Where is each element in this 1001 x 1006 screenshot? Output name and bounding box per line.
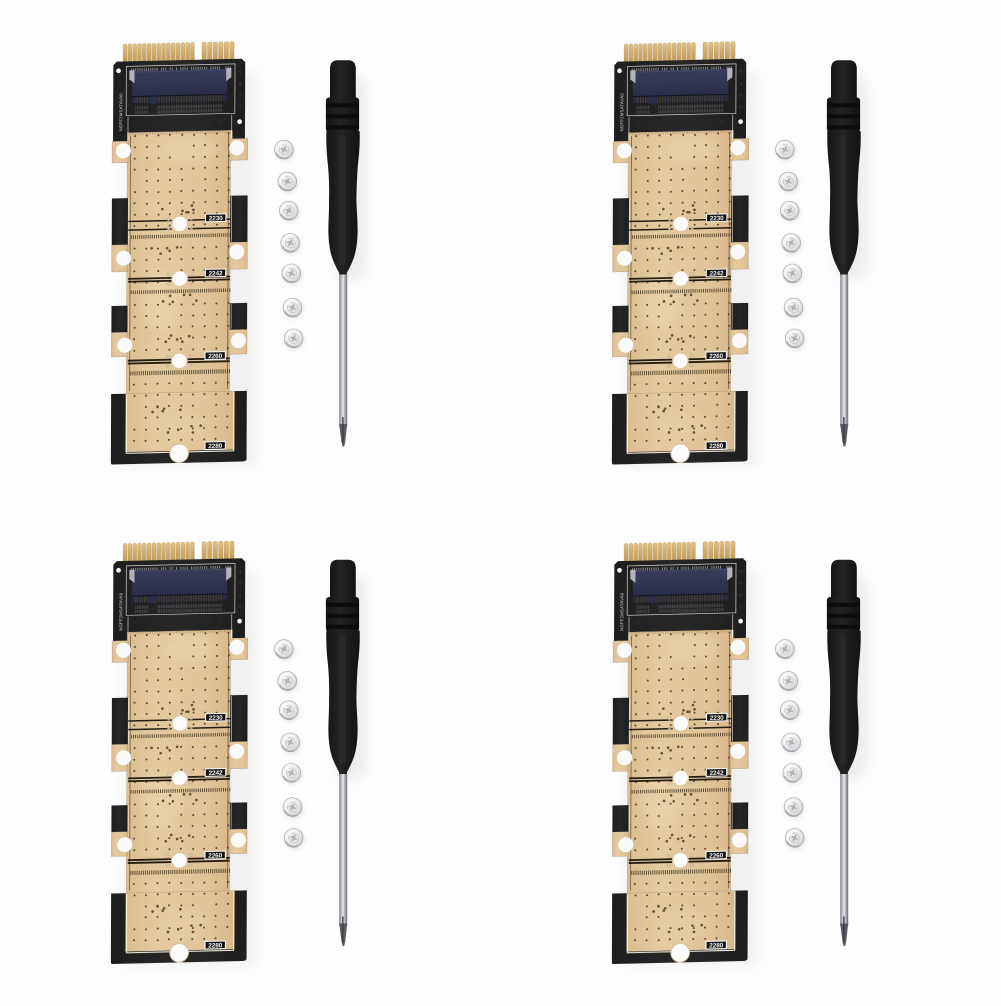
svg-text:2242: 2242 xyxy=(710,770,724,777)
svg-text:NGFF2MSATAVA0: NGFF2MSATAVA0 xyxy=(118,592,123,631)
svg-text:NGFF2MSATAVA0: NGFF2MSATAVA0 xyxy=(619,93,624,132)
svg-text:2260: 2260 xyxy=(208,852,222,859)
svg-text:2260: 2260 xyxy=(709,852,723,859)
svg-text:2230: 2230 xyxy=(710,715,724,722)
svg-text:2280: 2280 xyxy=(709,942,723,949)
svg-text:2242: 2242 xyxy=(209,770,223,777)
svg-text:2280: 2280 xyxy=(208,942,222,949)
svg-text:2280: 2280 xyxy=(709,443,723,450)
svg-text:2280: 2280 xyxy=(208,443,222,450)
svg-text:2260: 2260 xyxy=(208,353,222,360)
svg-text:2230: 2230 xyxy=(209,715,223,722)
svg-text:2230: 2230 xyxy=(710,215,724,222)
svg-text:2242: 2242 xyxy=(209,270,223,277)
svg-text:2260: 2260 xyxy=(709,353,723,360)
svg-text:NGFF2MSATAVA0: NGFF2MSATAVA0 xyxy=(118,93,123,132)
svg-text:2242: 2242 xyxy=(710,270,724,277)
svg-text:NGFF2MSATAVA0: NGFF2MSATAVA0 xyxy=(619,592,624,631)
svg-text:2230: 2230 xyxy=(209,215,223,222)
